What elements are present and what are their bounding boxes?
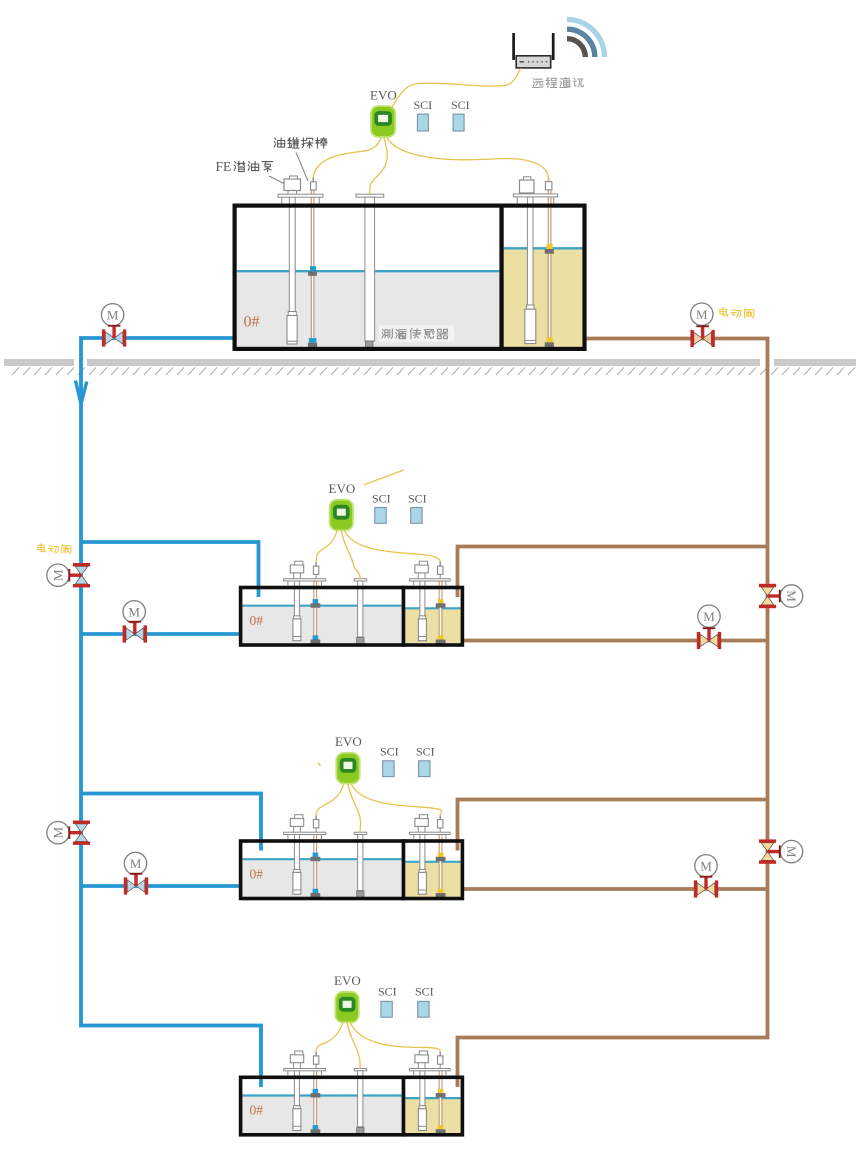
svg-text:M: M — [696, 307, 708, 322]
svg-text:M: M — [128, 604, 140, 619]
svg-text:SCI: SCI — [380, 745, 399, 759]
svg-text:SCI: SCI — [451, 98, 470, 112]
svg-text:SCI: SCI — [414, 98, 433, 112]
svg-text:M: M — [130, 856, 142, 871]
svg-text:M: M — [51, 826, 66, 838]
svg-text:EVO: EVO — [335, 734, 362, 749]
svg-text:0#: 0# — [250, 1103, 264, 1118]
svg-text:EVO: EVO — [334, 973, 361, 988]
svg-text:M: M — [700, 858, 712, 873]
svg-text:M: M — [703, 609, 715, 624]
svg-text:0#: 0# — [250, 613, 264, 628]
svg-text:SCI: SCI — [416, 745, 435, 759]
svg-text:M: M — [784, 846, 799, 858]
svg-text:0#: 0# — [250, 866, 264, 881]
svg-text:SCI: SCI — [408, 492, 427, 506]
svg-text:M: M — [107, 307, 119, 322]
svg-text:M: M — [51, 569, 66, 581]
svg-text:FE: FE — [216, 159, 232, 174]
svg-text:SCI: SCI — [415, 985, 434, 999]
svg-text:EVO: EVO — [370, 88, 397, 103]
svg-text:SCI: SCI — [378, 985, 397, 999]
svg-text:0#: 0# — [244, 314, 260, 331]
svg-text:M: M — [784, 590, 799, 602]
svg-text:SCI: SCI — [372, 492, 391, 506]
svg-text:EVO: EVO — [329, 481, 356, 496]
